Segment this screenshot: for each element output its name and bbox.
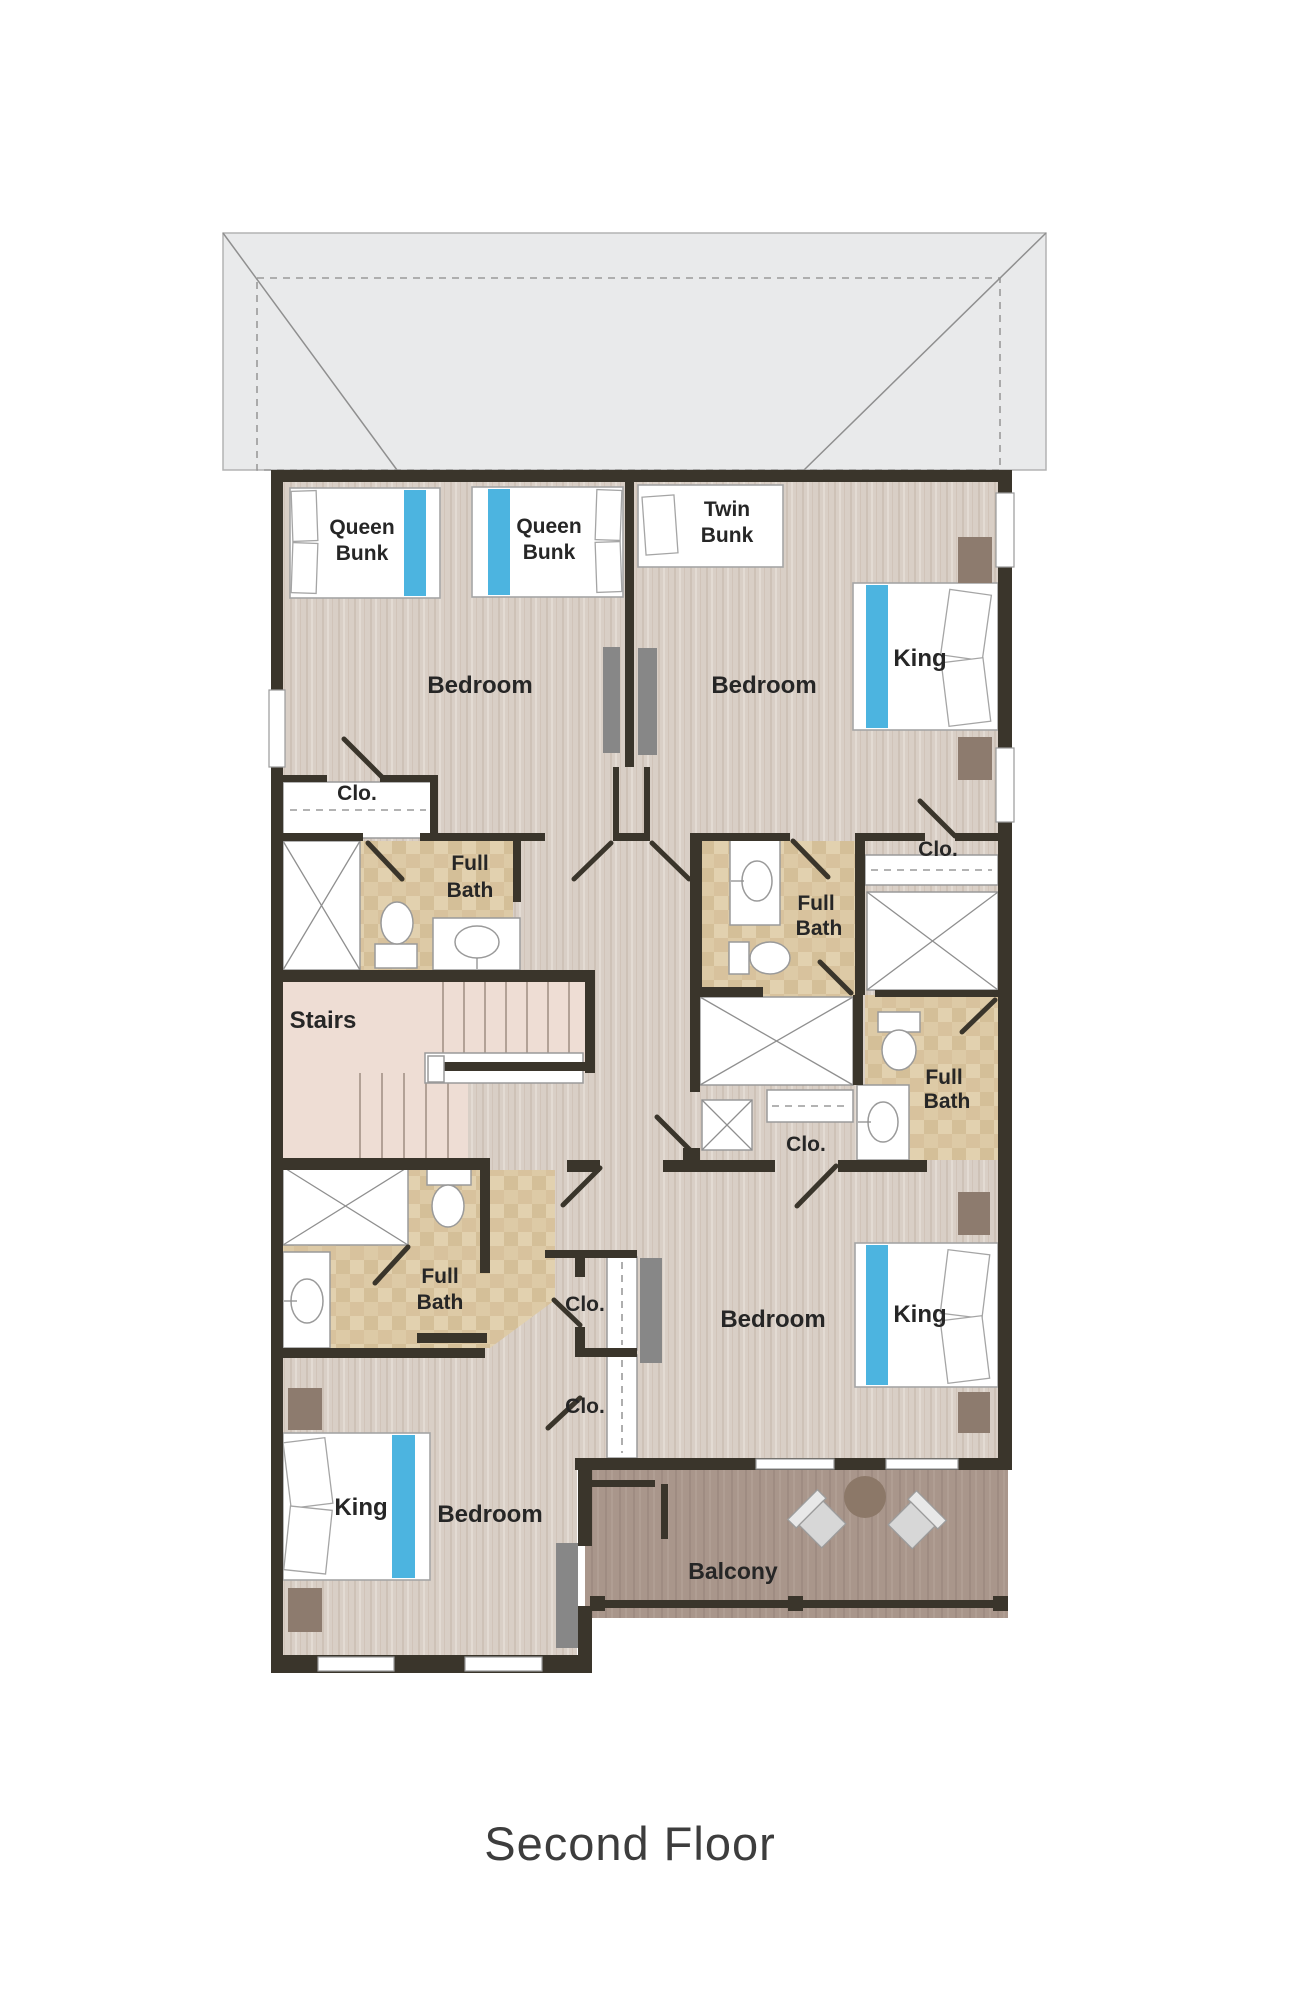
bath-label-upper-right-line2: Bath [796,917,843,940]
storage-center [700,997,853,1085]
dresser [638,648,657,755]
closet-label-mid-right: Clo. [786,1133,826,1156]
sink [857,1085,909,1160]
closet-label-upper-right: Clo. [918,838,958,861]
nightstand [958,1192,990,1235]
room-label-balcony: Balcony [688,1558,778,1584]
nightstand [288,1588,322,1632]
bath-label-upper-left-line1: Full [451,852,488,875]
toilet [878,1012,920,1070]
closet-label-upper-left: Clo. [337,782,377,805]
sink [433,918,520,970]
shower-upper-left [283,841,360,970]
room-label-bedroom-lower-left: Bedroom [437,1501,542,1528]
bath-label-upper-left-line2: Bath [447,879,494,902]
patio-table [844,1476,886,1518]
bed-label-twin-bunk-line2: Bunk [701,524,754,547]
room-label-bedroom-upper-right: Bedroom [711,672,816,699]
bath-label-mid-right-line1: Full [925,1066,962,1089]
closet-label-lower-1: Clo. [565,1293,605,1316]
nightstand [958,737,992,780]
bed-label-queen-bunk-2-line2: Bunk [523,541,576,564]
bed-label-king-lower-right: King [893,1301,946,1328]
dresser [556,1543,578,1648]
closet-hall-small [702,1100,752,1150]
nightstand [288,1388,322,1430]
nightstand [958,537,992,583]
bed-label-king-upper-right: King [893,645,946,672]
shower-lower-left [283,1167,408,1245]
dresser [640,1258,662,1363]
sink [283,1252,330,1348]
bed-label-queen-bunk-1-line2: Bunk [336,542,389,565]
nightstand [958,1392,990,1433]
page-title: Second Floor [484,1817,776,1870]
stairs-floor-lower [283,1073,468,1158]
balcony-floor [585,1470,1008,1618]
floor-plan: Queen Bunk Queen Bunk Twin Bunk King Kin… [0,0,1299,2000]
room-label-bedroom-upper-left: Bedroom [427,672,532,699]
room-label-bedroom-lower-right: Bedroom [720,1306,825,1333]
bath-label-mid-right-line2: Bath [924,1090,971,1113]
toilet [729,942,790,974]
bath-label-upper-right-line1: Full [797,892,834,915]
room-label-stairs: Stairs [290,1007,357,1034]
sink [730,840,780,925]
bath-label-lower-left-line2: Bath [417,1291,464,1314]
floorplan-page: Queen Bunk Queen Bunk Twin Bunk King Kin… [0,0,1299,2000]
closet-label-lower-2: Clo. [565,1395,605,1418]
bed-label-twin-bunk-line1: Twin [704,498,750,521]
bath-label-lower-left-line1: Full [421,1265,458,1288]
bed-label-queen-bunk-2-line1: Queen [516,515,581,538]
dresser [603,647,620,753]
roof [223,233,1046,470]
shower-mid-right [867,892,998,990]
bed-label-king-lower-left: King [334,1494,387,1521]
bed-label-queen-bunk-1-line1: Queen [329,516,394,539]
